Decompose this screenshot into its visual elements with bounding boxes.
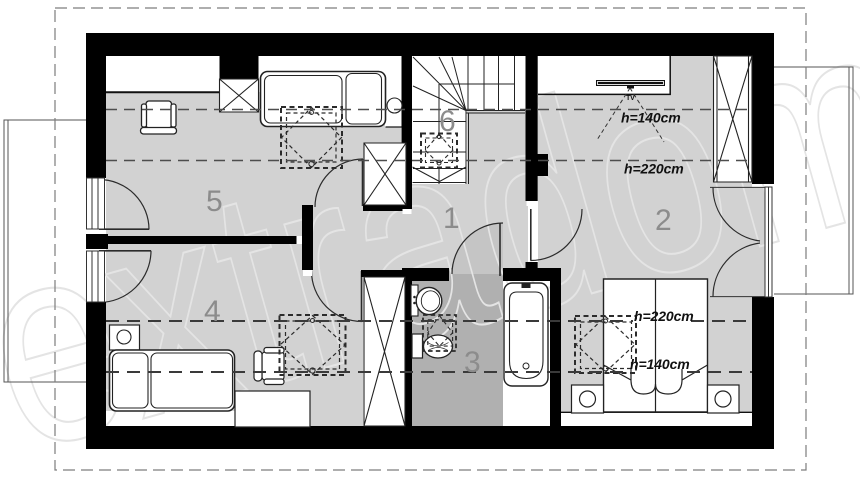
svg-text:1: 1 <box>443 202 460 235</box>
svg-text:3: 3 <box>464 346 481 379</box>
svg-text:2: 2 <box>655 204 672 237</box>
svg-text:4: 4 <box>204 295 221 328</box>
svg-text:TV: TV <box>626 95 635 102</box>
svg-text:5: 5 <box>206 185 223 218</box>
svg-text:6: 6 <box>439 105 456 138</box>
svg-text:h=220cm: h=220cm <box>624 161 684 177</box>
svg-text:h=220cm: h=220cm <box>634 308 694 324</box>
svg-text:h=140cm: h=140cm <box>621 110 681 126</box>
svg-text:h=140cm: h=140cm <box>630 356 690 372</box>
